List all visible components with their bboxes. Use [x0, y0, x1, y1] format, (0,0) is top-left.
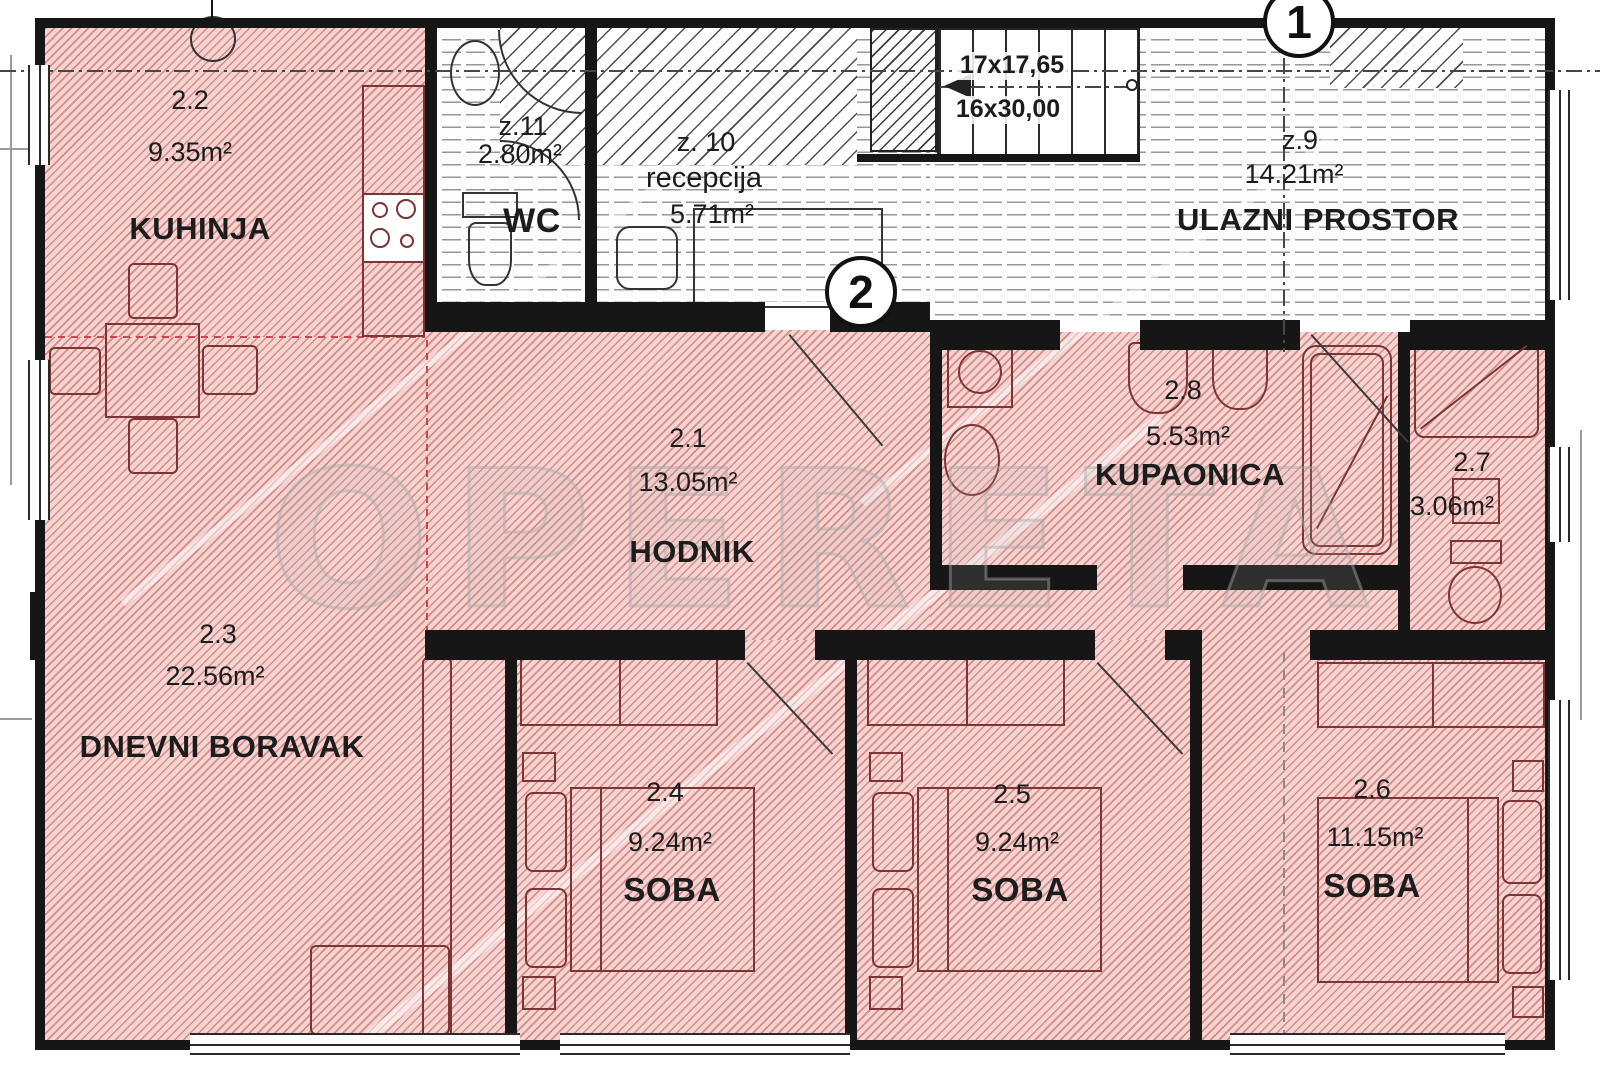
floor-plan: 2.2 9.35m² KUHINJA z.11 2.80m² WC z. 10 … — [0, 0, 1600, 1080]
room-id: z.9 — [1282, 126, 1318, 156]
room-area: 14.21m² — [1244, 160, 1343, 190]
wall-below-wc — [425, 302, 765, 332]
stair-edge-wall — [857, 154, 1140, 162]
level-marker-2: 2 — [825, 256, 897, 328]
stairwell-void-hatch — [1330, 28, 1463, 88]
room-id: 2.5 — [993, 780, 1031, 810]
room-name: SOBA — [1323, 868, 1420, 904]
room-name: SOBA — [971, 872, 1068, 908]
room-id: 2.6 — [1353, 775, 1391, 805]
room-id: z.11 — [498, 112, 547, 142]
room-area: 9.35m² — [148, 138, 232, 168]
wardrobe — [867, 658, 1065, 726]
wall-soba25-soba26 — [1190, 640, 1202, 1040]
window-symbol — [28, 65, 50, 165]
shower — [1414, 340, 1539, 438]
wall-soba24-soba25 — [845, 640, 857, 1040]
exterior-line — [1580, 430, 1582, 720]
sofa-seat — [310, 945, 450, 1035]
wall-wc27-left — [1398, 332, 1410, 640]
wall-wc-recepcija — [585, 18, 597, 304]
room-area: 11.15m² — [1326, 823, 1423, 853]
pillow — [1502, 800, 1542, 884]
window-symbol — [1548, 90, 1570, 300]
pillow — [525, 792, 567, 872]
wall-below-ulazni — [930, 320, 1060, 350]
balcony-door-leaf — [30, 592, 37, 660]
nightstand — [869, 976, 903, 1010]
door-pivot-stem — [211, 0, 213, 20]
dining-chair — [128, 418, 178, 474]
room-area: 13.05m² — [638, 468, 737, 498]
nightstand — [1512, 986, 1544, 1018]
office-chair — [616, 226, 678, 290]
dining-chair — [49, 347, 101, 395]
room-id: 2.3 — [199, 620, 237, 650]
stove-burner — [400, 234, 414, 248]
room-id: 2.7 — [1453, 448, 1491, 478]
room-name: ULAZNI PROSTOR — [1177, 203, 1459, 237]
stove-burner — [372, 202, 388, 218]
dining-chair — [202, 345, 258, 395]
wall-living-soba24 — [505, 640, 517, 1040]
room-id: 2.2 — [171, 86, 209, 116]
exterior-line — [0, 718, 32, 720]
room-area: 5.71m² — [670, 200, 754, 230]
nightstand — [522, 752, 556, 782]
nightstand — [522, 976, 556, 1010]
room-id: 2.4 — [646, 778, 684, 808]
pillow — [1502, 894, 1542, 974]
level-marker-2-label: 2 — [848, 265, 874, 319]
washing-machine-drum — [958, 350, 1002, 394]
balcony-door-leaf — [38, 522, 45, 590]
exterior-line — [0, 148, 30, 150]
window-symbol — [190, 1033, 520, 1055]
stair-run-label: 17x17,65 — [956, 52, 1068, 80]
room-area: 2.80m² — [478, 140, 562, 170]
wall-below-ulazni — [1140, 320, 1300, 350]
stair-run-label: 16x30,00 — [952, 96, 1064, 124]
pillow — [872, 888, 914, 968]
stove-burner — [396, 199, 416, 219]
window-symbol — [560, 1033, 850, 1055]
window-symbol — [1548, 447, 1570, 542]
wardrobe — [520, 658, 718, 726]
nightstand — [1512, 760, 1544, 792]
axis-line-vertical-dashed — [1283, 652, 1285, 1040]
exterior-line — [10, 55, 12, 485]
room-name: WC — [503, 203, 561, 240]
room-area: 22.56m² — [165, 662, 264, 692]
axis-line-horizontal — [0, 70, 1600, 72]
stove — [362, 193, 425, 263]
room-area: 9.24m² — [975, 828, 1059, 858]
room-name: HODNIK — [629, 535, 754, 569]
window-symbol — [1230, 1033, 1505, 1055]
dining-chair — [128, 263, 178, 319]
bidet — [1212, 342, 1268, 410]
sink — [450, 40, 500, 106]
wardrobe — [1317, 662, 1545, 728]
room-area: 5.53m² — [1146, 422, 1230, 452]
wall-below-ulazni — [1410, 320, 1555, 350]
room-name: KUHINJA — [129, 212, 270, 246]
window-symbol — [28, 360, 50, 520]
window-symbol — [1548, 700, 1570, 980]
room-name: DNEVNI BORAVAK — [80, 730, 365, 764]
nightstand — [869, 752, 903, 782]
room-id: 2.1 — [669, 424, 707, 454]
room-name: SOBA — [623, 872, 720, 908]
room-id: 2.8 — [1164, 376, 1202, 406]
pillow — [525, 888, 567, 968]
dining-table — [105, 323, 200, 418]
stair-line-end — [1126, 79, 1138, 91]
toilet-tank — [1450, 540, 1502, 564]
stair-landing — [870, 28, 937, 152]
room-area: 3.06m² — [1410, 492, 1494, 522]
room-name: recepcija — [646, 163, 762, 195]
room-area: 9.24m² — [628, 828, 712, 858]
room-name: KUPAONICA — [1095, 458, 1285, 492]
pillow — [872, 792, 914, 872]
room-id: z. 10 — [677, 128, 736, 158]
level-marker-1-label: 1 — [1286, 0, 1312, 49]
wall-kitchen-right — [425, 18, 437, 332]
stove-burner — [370, 228, 390, 248]
toilet-bowl — [1448, 566, 1502, 624]
